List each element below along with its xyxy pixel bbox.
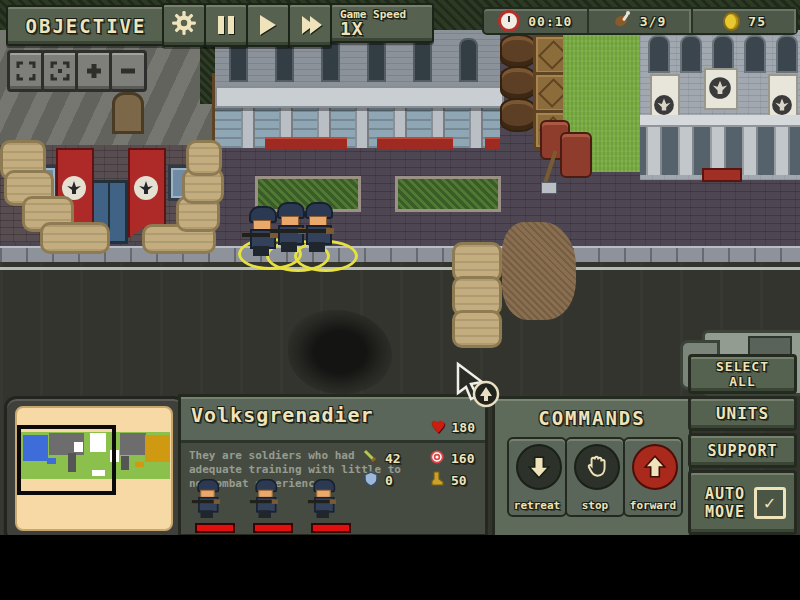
support-button[interactable]: SUPPORT (688, 433, 797, 468)
red-base-strip (485, 137, 500, 149)
auto-move-checkbox[interactable]: ✓ (754, 487, 786, 519)
minimap-surface (15, 406, 173, 531)
sword-icon (363, 449, 379, 468)
minimap-gold-building (145, 435, 170, 462)
banner-emblem (134, 176, 158, 200)
barrel (500, 66, 536, 100)
red-base-strip (265, 137, 347, 149)
red-base-strip (377, 137, 453, 149)
range-stat: 160 (429, 449, 474, 468)
retreat-label: retreat (509, 499, 565, 512)
commands-title: COMMANDS (495, 407, 689, 429)
minimap[interactable] (4, 396, 186, 535)
commands-panel: COMMANDS retreat stop forward (492, 396, 692, 535)
minimap-building (121, 456, 129, 470)
shovel-blade (541, 182, 557, 194)
auto-move-label: AUTO MOVE (699, 485, 751, 521)
game-speed-panel: Game Speed 1X (330, 3, 434, 43)
center-icon (50, 61, 70, 81)
forward-button[interactable]: forward (623, 437, 683, 517)
cost-value: 50 (451, 473, 467, 488)
barrel (500, 98, 536, 132)
resource-bar: 00:10 3/9 75 (482, 7, 798, 35)
squad-member-health-bar (195, 523, 235, 533)
unit-info-panel: Volksgrenadier ♥ 180 They are soldiers w… (178, 394, 488, 535)
attack-stat: 42 (363, 449, 401, 468)
upper-window (413, 38, 432, 82)
upper-window (367, 38, 386, 82)
pause-icon (216, 16, 236, 34)
column (241, 106, 255, 148)
game-speed-value: 1X (340, 21, 432, 37)
fast-forward-button[interactable] (288, 3, 332, 47)
road-line (0, 267, 800, 270)
timer-display: 00:10 (484, 9, 587, 33)
upper-window (680, 35, 702, 73)
settings-button[interactable] (162, 3, 206, 47)
objective-button[interactable]: OBJECTIVE (6, 5, 166, 46)
minus-icon (118, 61, 138, 81)
game-viewport[interactable]: OBJECTIVE Game Speed 1X (0, 0, 800, 535)
stop-button[interactable]: stop (565, 437, 625, 517)
forward-arrow-icon (632, 444, 678, 490)
check-icon: ✓ (764, 492, 776, 513)
dirt-patch (502, 222, 576, 320)
unit-health-value: 180 (452, 420, 475, 435)
auto-move-button[interactable]: AUTO MOVE ✓ (688, 470, 797, 535)
pause-button[interactable] (204, 3, 248, 47)
hq-roof-window (112, 92, 144, 134)
squad-member-thumb[interactable] (311, 479, 355, 531)
sandbag (40, 222, 110, 254)
boot-icon (429, 471, 445, 490)
soldier-unit[interactable] (302, 202, 332, 254)
storefront-glass (215, 106, 500, 148)
retreat-arrow-icon (516, 444, 562, 490)
coin-icon (723, 12, 740, 31)
grenade-display: 3/9 (587, 9, 692, 33)
red-drum (560, 132, 592, 178)
stop-label: stop (567, 499, 623, 512)
sandbag (186, 140, 222, 176)
sandbag-barricade (452, 310, 502, 348)
column (355, 106, 369, 148)
center-view-button[interactable] (41, 50, 79, 92)
expand-view-button[interactable] (7, 50, 45, 92)
range-value: 160 (451, 451, 474, 466)
clock-icon (498, 10, 520, 32)
bank-building (640, 30, 800, 180)
hedge-planter (395, 176, 501, 212)
armor-value: 0 (385, 473, 393, 488)
forward-label: forward (625, 499, 681, 512)
awning (215, 86, 504, 108)
game-window: OBJECTIVE Game Speed 1X (0, 0, 800, 600)
cost-stat: 50 (429, 471, 467, 490)
zoom-in-button[interactable] (75, 50, 113, 92)
red-doorstep (702, 168, 742, 182)
column (774, 127, 790, 175)
squad-member-health-bar (253, 523, 293, 533)
storefront-building (215, 30, 500, 148)
column (742, 127, 758, 175)
play-icon (260, 15, 276, 35)
upper-window (776, 35, 798, 73)
units-button[interactable]: UNITS (688, 396, 797, 431)
attack-value: 42 (385, 451, 401, 466)
target-icon (429, 449, 445, 468)
gear-icon (171, 10, 197, 40)
upper-window (744, 35, 766, 73)
coin-display: 75 (691, 9, 796, 33)
soldier-unit[interactable] (274, 202, 304, 254)
hand-icon (574, 444, 620, 490)
fast-forward-icon (302, 16, 318, 34)
minimap-marker (135, 462, 144, 467)
coin-count: 75 (748, 14, 766, 29)
squad-member-thumb[interactable] (195, 479, 239, 531)
column (469, 106, 483, 148)
timer-value: 00:10 (528, 14, 572, 29)
unit-health: ♥ 180 (430, 417, 475, 437)
drumstick-icon (614, 10, 632, 32)
column (678, 127, 694, 175)
expand-icon (16, 61, 36, 81)
retreat-button[interactable]: retreat (507, 437, 567, 517)
upper-window (648, 35, 670, 73)
shield-icon (363, 471, 379, 490)
armor-stat: 0 (363, 471, 393, 490)
colonnade (640, 115, 800, 175)
unit-name: Volksgrenadier (191, 403, 374, 427)
minimap-viewport-frame[interactable] (17, 425, 116, 495)
heart-icon: ♥ (430, 417, 445, 437)
white-plaque (704, 68, 738, 110)
plus-icon (84, 61, 104, 81)
squad-member-health-bar (311, 523, 351, 533)
upper-window (459, 38, 478, 82)
minimap-building (120, 433, 146, 455)
squad-member-thumb[interactable] (253, 479, 297, 531)
barrel (500, 34, 536, 68)
play-button[interactable] (246, 3, 290, 47)
grenade-count: 3/9 (640, 14, 666, 29)
select-all-button[interactable]: SELECT ALL (688, 354, 797, 394)
unit-info-header: Volksgrenadier ♥ 180 (181, 397, 485, 443)
zoom-out-button[interactable] (109, 50, 147, 92)
column (646, 127, 662, 175)
